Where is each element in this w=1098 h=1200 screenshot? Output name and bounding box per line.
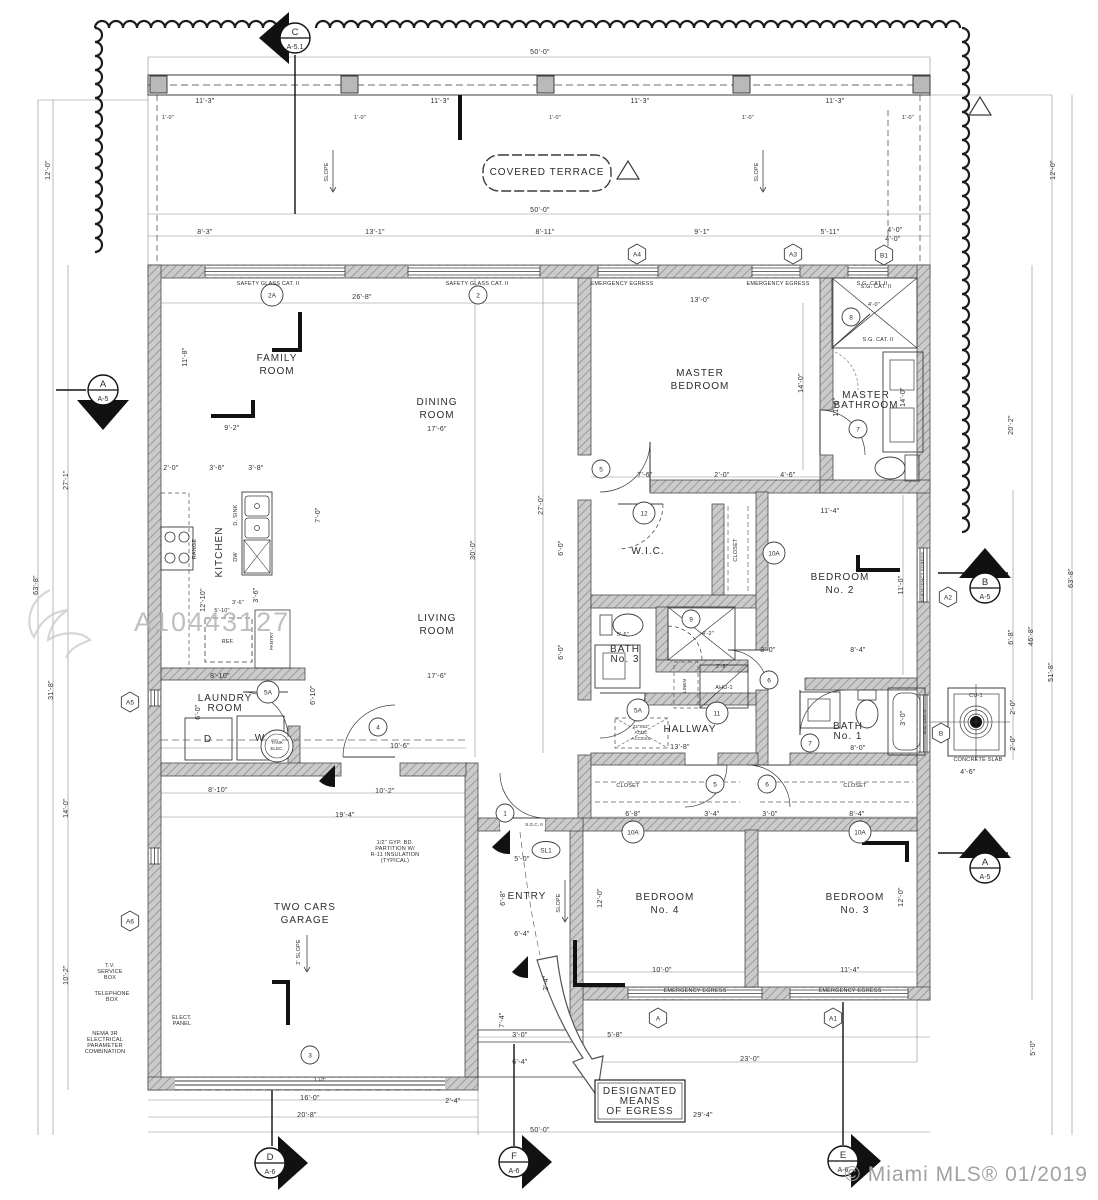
note-label: CU-1	[969, 693, 983, 699]
svg-text:2: 2	[476, 292, 480, 299]
room-label: BEDROOM	[636, 892, 695, 903]
door-window-tag: 2A	[261, 284, 283, 306]
dimension-label: 3'-0"	[900, 710, 907, 726]
svg-text:A-6: A-6	[509, 1168, 520, 1175]
door-window-tag: 6	[758, 775, 776, 793]
svg-text:SL1: SL1	[540, 847, 552, 854]
room-label: DINING	[417, 397, 458, 408]
dimension-label: 19'-4"	[335, 812, 355, 819]
svg-text:D: D	[267, 1152, 274, 1163]
dimension-label: 4'-6"	[960, 769, 976, 776]
dimension-label: 46'-8"	[1028, 626, 1035, 646]
dimension-label: 3'-0"	[760, 647, 776, 654]
svg-text:4: 4	[376, 724, 380, 731]
room-label: OF EGRESS	[606, 1106, 673, 1117]
dimension-label: 3'-6"	[209, 465, 225, 472]
dimension-label: 31'-8"	[48, 680, 55, 700]
note-label: DW	[233, 552, 239, 562]
room-label: COVERED TERRACE	[490, 167, 605, 178]
dimension-label: 50'-0"	[530, 49, 550, 56]
note-label: BOX	[104, 975, 116, 981]
note-label: EMERGENCY EGRESS	[746, 281, 809, 287]
svg-text:A3: A3	[789, 251, 797, 258]
dimension-label: 8'-11"	[535, 229, 554, 236]
svg-text:7: 7	[856, 426, 860, 433]
svg-text:6: 6	[767, 677, 771, 684]
dimension-label: 11'-3"	[195, 98, 214, 105]
dimension-label: 50'-0"	[530, 1127, 550, 1134]
section-marker: CA-5.1	[259, 12, 310, 64]
dimension-label: 6'-8"	[625, 811, 641, 818]
note-label: BOX	[106, 997, 118, 1003]
wall-type-tag: A1	[824, 1008, 841, 1028]
note-label: SAFETY GLASS CAT. II	[237, 281, 300, 287]
dimension-label: 29'-4"	[693, 1112, 713, 1119]
note-label: D. SINK	[233, 504, 239, 525]
wall-type-tag: B	[932, 723, 949, 743]
door-window-tag: 10A	[622, 821, 644, 843]
dimension-label: 17'-6"	[427, 673, 447, 680]
note-label: CLOSET	[843, 783, 867, 789]
room-label: ROOM	[419, 410, 454, 421]
dimension-label: 63'-8"	[1068, 568, 1075, 588]
dimension-label: 11'-4"	[820, 508, 839, 515]
dimension-label: 5'-8"	[607, 1032, 623, 1039]
room-label: No. 2	[826, 585, 855, 596]
svg-text:2A: 2A	[268, 292, 277, 299]
dimension-label: 30'-0"	[470, 540, 477, 560]
dimension-label: 8'-10"	[210, 673, 230, 680]
dimension-label: 26'-8"	[352, 294, 372, 301]
room-label: TWO CARS	[274, 902, 336, 913]
dimension-label: 11'-3"	[825, 98, 844, 105]
dimension-label: 8'-4"	[849, 811, 865, 818]
svg-text:A-5.1: A-5.1	[287, 44, 304, 51]
note-label: 5'-6"	[617, 632, 629, 638]
dimension-label: 10'-0"	[652, 967, 672, 974]
svg-text:5A: 5A	[264, 689, 273, 696]
note-label: 2' SLOPE	[296, 939, 302, 965]
dimension-label: 8'-10"	[208, 787, 228, 794]
dimension-label: 14'-0"	[63, 798, 70, 818]
section-marker: EA-6	[828, 1134, 881, 1188]
note-label: 1 1/2"	[314, 1077, 326, 1082]
dimension-label: 3'-4"	[704, 811, 720, 818]
svg-text:A-5: A-5	[980, 874, 991, 881]
note-label: SLOPE	[556, 893, 562, 912]
note-label: SAFETY GLASS CAT. II	[446, 281, 509, 287]
note-label: CLOSET	[733, 538, 739, 562]
dimension-label: 6'-8"	[500, 890, 507, 906]
svg-text:9: 9	[689, 616, 693, 623]
dimension-label: 3'-8"	[248, 465, 264, 472]
room-label: BEDROOM	[811, 572, 870, 583]
door-window-tag: 5	[592, 460, 610, 478]
door-window-tag: 7	[849, 420, 867, 438]
room-label: No. 1	[834, 731, 863, 742]
dimension-label: 10'-2"	[375, 788, 395, 795]
wall-type-tag: A6	[121, 911, 138, 931]
note-label: 5'-10"	[214, 608, 229, 614]
room-label: LIVING	[418, 613, 457, 624]
dimension-label: 12'-0"	[45, 160, 52, 180]
door-window-tag: 1	[496, 804, 514, 822]
warning-triangle-icon	[617, 161, 639, 179]
note-label: RANGE	[192, 539, 198, 560]
note-label: 1'-0"	[742, 115, 754, 121]
note-label: EMERGENCY EGRESS	[920, 552, 925, 602]
note-label: 1'-0"	[902, 115, 914, 121]
dimension-label: 11'-0"	[898, 575, 905, 594]
door-window-tag: 9	[682, 610, 700, 628]
room-label: KITCHEN	[214, 527, 225, 578]
svg-text:A-5: A-5	[98, 396, 109, 403]
room-label: ROOM	[419, 626, 454, 637]
room-label: GARAGE	[281, 915, 330, 926]
dimension-label: 6'-0"	[195, 704, 202, 720]
dimension-label: 7'-0"	[315, 507, 322, 523]
dimension-label: 10'-6"	[390, 743, 410, 750]
dimension-label: 27'-1"	[63, 470, 70, 490]
svg-text:F: F	[511, 1151, 517, 1162]
dimension-label: 6'-10"	[310, 685, 317, 705]
dimension-label: 6'-4"	[512, 1059, 528, 1066]
dimension-label: 11'-4"	[840, 967, 859, 974]
svg-text:6: 6	[765, 781, 769, 788]
dimension-label: 8'-3"	[197, 229, 213, 236]
note-label: CLOSET	[616, 783, 640, 789]
dimension-label: 6'-0"	[558, 644, 565, 660]
dimension-label: 2'-0"	[1010, 699, 1017, 715]
note-label: SLOPE	[754, 162, 760, 181]
note-label: 22"X54"	[633, 724, 650, 729]
section-marker: FA-6	[499, 1135, 552, 1189]
room-label: FAMILY	[257, 353, 298, 364]
room-label: BATHROOM	[833, 400, 898, 411]
note-label: EMERGENCY EGRESS	[590, 281, 653, 287]
door-window-tag: 10A	[763, 542, 785, 564]
dimension-label: 11'-6"	[833, 397, 840, 416]
dimension-label: 5'-0"	[1030, 1040, 1037, 1056]
dimension-label: 8'-4"	[850, 647, 866, 654]
dimension-label: 4'-0"	[887, 227, 903, 234]
dimension-label: 12'-0"	[898, 887, 905, 907]
dimension-label: 23'-0"	[740, 1056, 760, 1063]
floor-plan-sheet: 2A2134555A5A66778910A10A10A1112A4A3B1A2A…	[0, 0, 1098, 1200]
note-label: REF.	[222, 639, 235, 645]
svg-text:A: A	[982, 857, 989, 868]
svg-text:7: 7	[808, 740, 812, 747]
dimension-label: 6'-0"	[558, 540, 565, 556]
svg-text:A-6: A-6	[838, 1167, 849, 1174]
note-label: AHU-1	[715, 685, 733, 691]
note-label: EMERGENCY EGRESS	[663, 988, 726, 994]
dimension-label: 3'-0"	[762, 811, 778, 818]
floor-plan-drawing: 2A2134555A5A66778910A10A10A1112A4A3B1A2A…	[0, 0, 1098, 1200]
note-label: S.G. CAT. II	[922, 710, 927, 734]
dimension-label: 2'-0"	[163, 465, 179, 472]
door-window-tag: 12	[633, 502, 655, 524]
svg-text:C: C	[292, 27, 299, 38]
dimension-label: 7'-6"	[637, 472, 653, 479]
wall-type-tag: B1	[875, 245, 892, 265]
door-tag-oval: SL1	[532, 842, 560, 859]
dimension-label: 5'-0"	[514, 856, 530, 863]
door-window-tag: 3	[301, 1046, 319, 1064]
svg-text:A2: A2	[944, 594, 952, 601]
door-window-tag: 6	[760, 671, 778, 689]
svg-text:A: A	[656, 1015, 661, 1022]
plan-geometry	[56, 21, 1010, 1146]
svg-text:1: 1	[503, 810, 507, 817]
dimension-label: 4'-0"	[885, 236, 901, 243]
warning-triangle-icon	[969, 97, 991, 115]
section-marker: AA-5	[77, 375, 129, 430]
dimension-label: 20'-2"	[1008, 415, 1015, 435]
room-label: ROOM	[259, 366, 294, 377]
svg-text:B1: B1	[880, 252, 888, 259]
door-window-tag: 5A	[257, 681, 279, 703]
dimension-label: 9'-1"	[694, 229, 710, 236]
dimension-label: 4'-6"	[780, 472, 796, 479]
room-label: No. 4	[651, 905, 680, 916]
note-label: 4'-0"	[868, 302, 880, 308]
room-label: BEDROOM	[826, 892, 885, 903]
svg-text:5: 5	[599, 466, 603, 473]
door-window-tag: 4	[369, 718, 387, 736]
svg-text:3: 3	[308, 1052, 312, 1059]
room-label: MASTER	[676, 368, 724, 379]
dimension-label: 12'-10"	[200, 588, 207, 612]
dimension-label: 9'-2"	[224, 425, 240, 432]
room-label: ROOM	[207, 703, 242, 714]
dimension-label: 7'-4"	[499, 1012, 506, 1028]
dimension-label: 3'-6"	[253, 587, 260, 603]
dimension-label: 10'-2"	[63, 965, 70, 985]
section-marker: AA-5	[959, 828, 1011, 883]
dimension-label: 14'-0"	[798, 373, 805, 393]
note-label: S.G. CAT. II	[862, 337, 893, 343]
plan-markers: 2A2134555A5A66778910A10A10A1112A4A3B1A2A…	[77, 12, 1011, 1190]
svg-text:A-6: A-6	[265, 1169, 276, 1176]
dimension-label: 2'-4"	[543, 975, 550, 991]
svg-text:10A: 10A	[768, 550, 780, 557]
note-label: 3'-6"	[232, 600, 244, 606]
dimension-label: 3'-0"	[512, 1032, 528, 1039]
dimension-label: 14'-0"	[900, 387, 907, 407]
room-label: HALLWAY	[664, 724, 717, 735]
note-label: TANK	[271, 740, 284, 745]
dimension-label: 12'-0"	[597, 888, 604, 908]
note-label: (TYPICAL)	[381, 858, 409, 864]
dimension-label: 6'-8"	[1008, 629, 1015, 645]
note-label: 4'-2"	[702, 631, 714, 637]
room-label: W.I.C.	[631, 546, 664, 557]
wall-type-tag: A5	[121, 692, 138, 712]
note-label: SLOPE	[324, 162, 330, 181]
svg-text:11: 11	[714, 710, 721, 717]
dimension-label: 6'-4"	[514, 931, 530, 938]
svg-text:E: E	[840, 1150, 846, 1161]
wall-type-tag: A2	[939, 587, 956, 607]
svg-text:5A: 5A	[634, 707, 643, 714]
wall-type-tag: A3	[784, 244, 801, 264]
room-label: No. 3	[611, 654, 640, 665]
dimension-label: 11'-3"	[630, 98, 649, 105]
dimension-label: 2'-4"	[445, 1098, 461, 1105]
dimension-label: 17'-6"	[427, 426, 447, 433]
dimension-label: 11'-3"	[430, 98, 449, 105]
dimension-label: 13'-8"	[670, 744, 690, 751]
dimension-label: 16'-0"	[300, 1095, 320, 1102]
note-label: EMERGENCY EGRESS	[818, 988, 881, 994]
svg-text:10A: 10A	[627, 829, 639, 836]
door-window-tag: 7	[801, 734, 819, 752]
svg-text:5: 5	[713, 781, 717, 788]
section-marker: BA-5	[959, 548, 1011, 603]
dimension-label: 50'-0"	[530, 207, 550, 214]
note-label: CONCRETE SLAB	[953, 757, 1002, 763]
svg-text:8: 8	[849, 314, 853, 321]
room-label: D	[204, 734, 212, 745]
dimension-label: 27'-0"	[538, 495, 545, 515]
svg-text:B: B	[939, 730, 943, 737]
wall-type-tag: A4	[628, 244, 645, 264]
svg-text:A1: A1	[829, 1015, 837, 1022]
note-label: LINEN	[682, 679, 687, 693]
dimension-label: 5'-11"	[820, 229, 839, 236]
dimension-label: 11'-8"	[182, 347, 189, 366]
svg-text:A6: A6	[126, 918, 134, 925]
door-window-tag: 5A	[627, 699, 649, 721]
wall-type-tag: A	[649, 1008, 666, 1028]
note-label: COMBINATION	[85, 1049, 126, 1055]
dimension-label: 2'-0"	[714, 472, 730, 479]
door-window-tag: 10A	[849, 821, 871, 843]
room-label: ENTRY	[508, 891, 547, 902]
dimension-label: 51'-8"	[1048, 662, 1055, 682]
section-marker: DA-6	[255, 1136, 308, 1190]
note-label: S.G.C. II	[525, 822, 543, 827]
note-label: 2'-8"	[716, 664, 728, 670]
room-label: No. 3	[841, 905, 870, 916]
dimension-label: 13'-1"	[365, 229, 385, 236]
svg-text:A-5: A-5	[980, 594, 991, 601]
svg-text:12: 12	[640, 510, 648, 517]
svg-text:10A: 10A	[854, 829, 866, 836]
svg-text:A5: A5	[126, 699, 134, 706]
dimension-label: 2'-0"	[1010, 735, 1017, 751]
note-label: S.G. CAT. II	[860, 284, 891, 290]
door-window-tag: 5	[706, 775, 724, 793]
note-label: ACCESS	[632, 736, 651, 741]
note-label: PANEL	[173, 1021, 192, 1027]
door-window-tag: 2	[469, 286, 487, 304]
note-label: PANTRY	[269, 632, 274, 650]
note-label: 1'-0"	[549, 115, 561, 121]
dimension-label: 8'-0"	[850, 745, 866, 752]
svg-text:B: B	[982, 577, 988, 588]
note-label: 1'-0"	[354, 115, 366, 121]
note-label: 1'-0"	[162, 115, 174, 121]
dimension-label: 12'-0"	[1050, 160, 1057, 180]
svg-text:A4: A4	[633, 251, 641, 258]
room-label: W	[255, 733, 265, 744]
dimension-label: 20'-8"	[297, 1112, 317, 1119]
dimension-label: 13'-0"	[690, 297, 710, 304]
door-window-tag: 11	[706, 702, 728, 724]
room-label: BEDROOM	[671, 381, 730, 392]
note-label: ELEC.	[270, 746, 283, 751]
note-label: ATTIC	[635, 730, 649, 735]
dimension-label: 63'-8"	[33, 575, 40, 595]
door-window-tag: 8	[842, 308, 860, 326]
svg-text:A: A	[100, 379, 107, 390]
